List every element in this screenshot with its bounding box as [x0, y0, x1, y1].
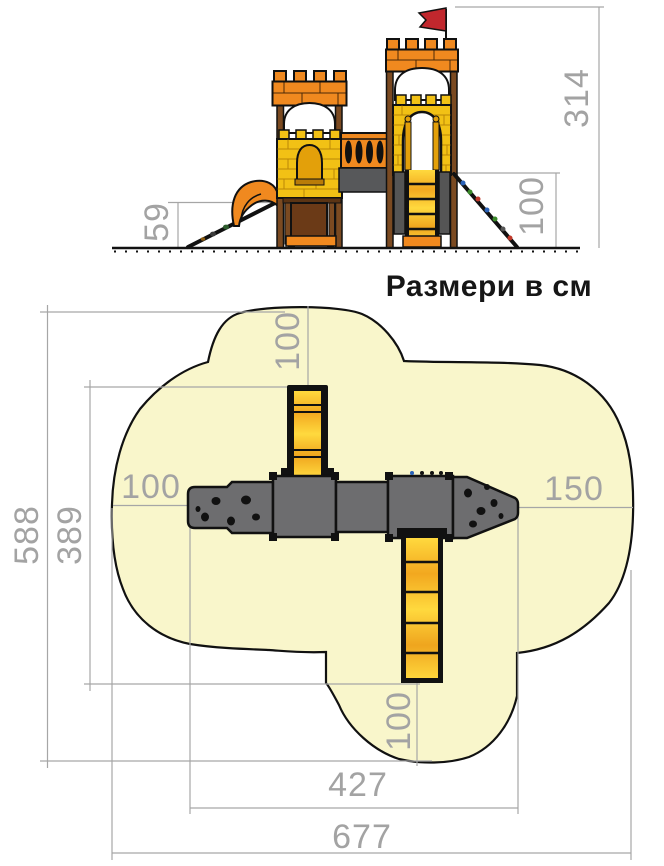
bridge: [339, 133, 392, 192]
plank-hold: [201, 237, 205, 241]
front-ladder: [409, 170, 435, 246]
dim-label-equipment-width: 427: [328, 766, 388, 804]
plan-platform-1: [273, 476, 336, 537]
plan-knob: [420, 471, 424, 475]
dim-label-area-depth: 588: [8, 505, 46, 565]
playground-dimension-drawing: 314 100 59: [0, 0, 664, 866]
dim-label-right-clearance: 150: [544, 470, 604, 508]
plan-bridge: [336, 482, 388, 532]
left-tower-arch: [284, 103, 335, 133]
left-tower: [273, 71, 347, 249]
ramp-hold: [508, 236, 513, 241]
dim-label-equipment-depth: 389: [51, 505, 89, 565]
plan-ladder-bottom: [397, 528, 447, 683]
window-sill: [295, 179, 324, 185]
plan-view: 100 588 389 100 150 100 427 677: [8, 305, 633, 860]
left-tower-cap: [273, 71, 347, 106]
elevation-view: 314 100 59: [112, 7, 604, 252]
ramp-hold: [501, 227, 506, 232]
drawing-title: Размери в см: [386, 270, 592, 303]
dim-label-plan-ladder-top: 100: [269, 311, 307, 371]
bridge-baluster: [356, 141, 363, 164]
plank-hold: [210, 232, 216, 237]
plan-knob: [430, 471, 434, 475]
dim-label-area-width: 677: [332, 818, 392, 856]
dim-label-total-height: 314: [558, 68, 596, 128]
ramp-hold: [468, 190, 473, 195]
dim-label-plan-ladder-bottom: 100: [380, 691, 418, 751]
right-climb-ramp: [454, 174, 517, 247]
plank-hold: [223, 225, 229, 230]
right-tower-cap: [386, 39, 458, 72]
bridge-baluster: [377, 141, 384, 164]
ground-line: [112, 248, 580, 252]
plan-ladder-top: [281, 385, 334, 478]
left-tower-wall: [277, 130, 342, 198]
right-tower-wall: [393, 95, 451, 175]
right-tower-base: [394, 170, 450, 247]
bridge-baluster: [345, 141, 352, 164]
ladder-finial: [405, 116, 411, 122]
ladder-finial: [433, 116, 439, 122]
ramp-hold: [493, 217, 498, 222]
ramp-hold: [485, 208, 490, 213]
arched-window: [297, 145, 322, 183]
left-tower-base: [283, 198, 341, 249]
plan-knob: [410, 471, 414, 475]
ramp-hold: [461, 181, 466, 186]
dim-label-slide-height: 59: [138, 202, 176, 242]
right-tower: [386, 8, 458, 248]
dim-label-left-clearance: 100: [121, 468, 181, 506]
bridge-baluster: [366, 141, 373, 164]
base-panel: [291, 203, 327, 237]
ramp-hold: [476, 197, 481, 202]
plan-knob: [439, 471, 443, 475]
drawing-canvas: 314 100 59: [0, 0, 664, 866]
left-slide-assembly: [188, 181, 278, 247]
bridge-deck-beam: [339, 168, 392, 192]
dim-label-climber-height: 100: [513, 176, 551, 236]
